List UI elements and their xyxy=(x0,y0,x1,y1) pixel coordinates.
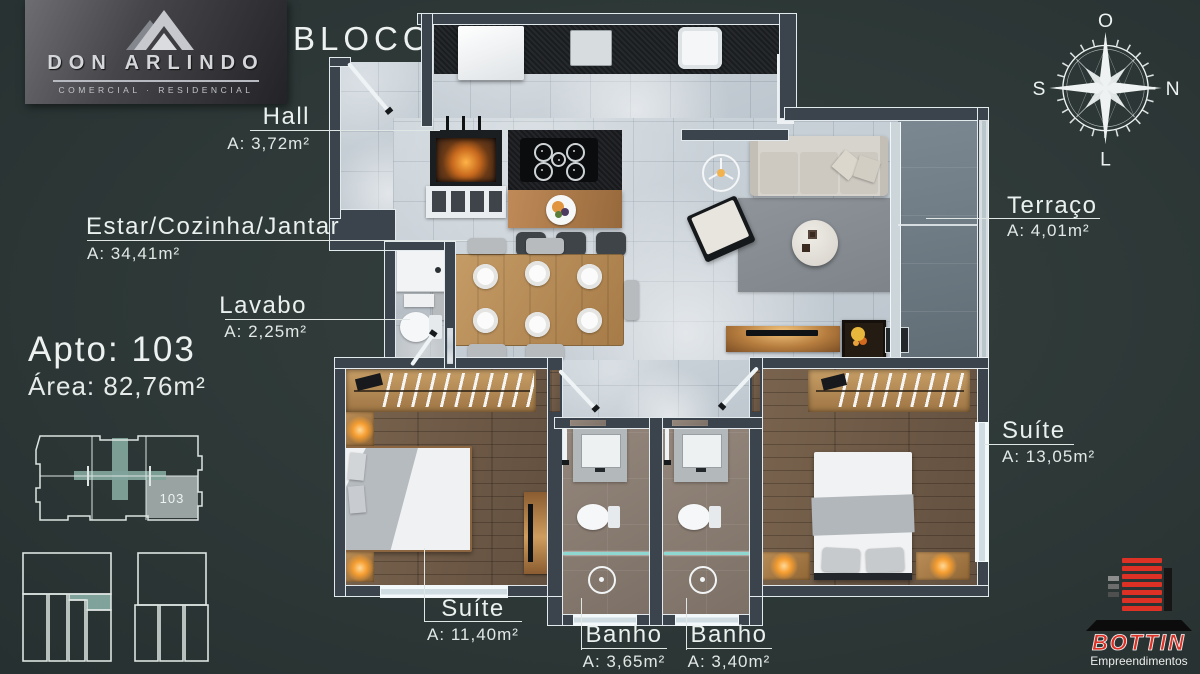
compass-north-label: N xyxy=(1166,78,1180,100)
keyplan-unit-103-label: 103 xyxy=(160,491,185,506)
nightstand xyxy=(758,552,810,580)
fruit-plate xyxy=(546,195,576,225)
label-lavabo: Lavabo xyxy=(147,292,307,320)
cabinet-drawer xyxy=(432,191,446,212)
apto-area: Área: 82,76m² xyxy=(28,371,206,402)
bed-throw xyxy=(811,494,914,536)
banho-left-toilet xyxy=(577,504,623,530)
don-arlindo-tagline: COMERCIAL · RESIDENCIAL xyxy=(25,85,287,95)
banho-left-door-leaf xyxy=(564,428,568,464)
suite-left-bed xyxy=(344,446,472,552)
ceiling-fan xyxy=(702,154,740,192)
wall-segment xyxy=(780,14,796,118)
label-suite-bottom-area: A: 11,40m² xyxy=(418,625,528,645)
fridge xyxy=(458,26,524,80)
plate xyxy=(525,312,550,337)
dining-chair xyxy=(468,238,506,254)
banho-left-shower-drain xyxy=(588,566,616,594)
plate xyxy=(473,264,498,289)
nightstand xyxy=(344,552,374,582)
label-estar: Estar/Cozinha/Jantar xyxy=(86,213,340,241)
suite-right-bed xyxy=(814,452,912,580)
building-keyplan: 103 xyxy=(30,430,208,528)
banho-right-vanity xyxy=(674,426,728,482)
cooktop xyxy=(520,138,598,182)
floor-plan xyxy=(330,14,988,626)
label-banho-right-area: A: 3,40m² xyxy=(683,652,775,672)
bottin-logo: BOTTIN Empreendimentos xyxy=(1082,556,1196,670)
label-suite-bottom: Suíte xyxy=(426,595,520,623)
label-lavabo-area: A: 2,25m² xyxy=(147,322,307,342)
bottin-building-icon xyxy=(1108,558,1170,620)
label-banho-left: Banho xyxy=(583,621,665,649)
suite-right-closet xyxy=(808,370,970,412)
label-suite-right-area: A: 13,05m² xyxy=(1002,447,1095,467)
site-diagram-left xyxy=(20,550,116,666)
leader-hall xyxy=(250,130,440,131)
banho-right-toilet xyxy=(678,504,724,530)
wall-segment xyxy=(335,360,345,596)
leader-lavabo xyxy=(225,319,410,320)
dining-chair xyxy=(624,280,639,320)
terraco-rail-glass xyxy=(979,120,989,358)
suite-right-window xyxy=(975,422,989,562)
wall-segment xyxy=(650,418,662,625)
door-opening xyxy=(570,420,606,426)
churrasqueira-grill xyxy=(436,138,496,182)
label-hall: Hall xyxy=(150,103,310,131)
nightstand xyxy=(344,412,374,446)
door-opening xyxy=(447,328,453,364)
plate xyxy=(473,308,498,333)
don-arlindo-logo: DON ARLINDO COMERCIAL · RESIDENCIAL xyxy=(25,0,287,104)
leader-suite-right xyxy=(984,444,1074,445)
bottin-tagline: Empreendimentos xyxy=(1082,654,1196,668)
door-opening xyxy=(752,370,760,412)
floor-plan-poster: { "title": { "bloco": "BLOCO B" }, "apar… xyxy=(0,0,1200,674)
bed-footboard xyxy=(814,573,912,580)
nightstand xyxy=(916,552,970,580)
terraco-rail-line xyxy=(898,224,980,226)
plate xyxy=(577,264,602,289)
wall-segment xyxy=(422,14,432,126)
don-arlindo-name: DON ARLINDO xyxy=(25,52,287,75)
bar-stool xyxy=(596,232,626,256)
banho-right-shower-glass xyxy=(664,552,752,555)
bed-pillow xyxy=(348,452,367,481)
dining-table xyxy=(450,254,624,346)
compass-east-label: L xyxy=(1100,149,1111,170)
bed-pillow xyxy=(865,547,904,573)
banho-left-vanity xyxy=(573,426,627,482)
label-suite-right: Suíte xyxy=(1002,417,1066,445)
bed-pillow xyxy=(821,547,860,573)
tv xyxy=(746,330,818,336)
wall-segment xyxy=(682,130,788,140)
garment xyxy=(355,373,383,391)
wall-segment xyxy=(418,14,790,24)
cabinet-drawer xyxy=(489,191,502,212)
door-opening xyxy=(550,370,560,412)
lavabo-vanity xyxy=(396,250,448,292)
lavabo-shelf xyxy=(404,294,434,307)
label-terraco-area: A: 4,01m² xyxy=(1007,221,1090,241)
don-arlindo-mountain-icon xyxy=(96,4,216,54)
bottin-name: BOTTIN xyxy=(1082,630,1196,656)
bed-pillow xyxy=(348,485,366,513)
sofa xyxy=(750,136,888,196)
banho-right-door-leaf xyxy=(666,428,670,464)
site-diagram-right xyxy=(132,550,212,666)
compass-west-label: O xyxy=(1098,10,1113,32)
label-hall-area: A: 3,72m² xyxy=(150,134,310,154)
kitchen-sink xyxy=(570,30,612,66)
plate xyxy=(577,308,602,333)
churrasqueira-skewers xyxy=(446,116,490,130)
label-banho-left-area: A: 3,65m² xyxy=(578,652,670,672)
laundry-tub xyxy=(678,27,722,69)
compass-rose: O N S L xyxy=(1028,8,1183,170)
plate xyxy=(525,261,550,286)
wall-segment xyxy=(755,586,988,596)
banho-right-shower-drain xyxy=(689,566,717,594)
suite-left-closet xyxy=(346,370,536,412)
leader-terraco xyxy=(926,218,1100,219)
flower-frame-art xyxy=(842,320,886,362)
bedroom-corridor-floor xyxy=(558,360,750,426)
terraco-floor xyxy=(898,118,980,360)
label-terraco: Terraço xyxy=(1007,192,1098,220)
banho-left-shower-glass xyxy=(563,552,651,555)
label-estar-area: A: 34,41m² xyxy=(87,244,180,264)
wall-segment xyxy=(330,58,340,218)
door-opening xyxy=(672,420,708,426)
leader-estar xyxy=(87,240,467,241)
wall-segment xyxy=(750,358,988,368)
coffee-table xyxy=(792,220,838,266)
label-banho-right: Banho xyxy=(688,621,770,649)
cabinet-drawer xyxy=(451,191,465,212)
compass-south-label: S xyxy=(1033,78,1046,100)
suite-left-tv-unit xyxy=(524,492,548,574)
don-arlindo-divider xyxy=(53,80,259,82)
wall-segment xyxy=(785,108,988,120)
dining-chair xyxy=(526,238,564,254)
cabinet-drawer xyxy=(470,191,484,212)
terraco-sliding-door xyxy=(890,122,901,360)
